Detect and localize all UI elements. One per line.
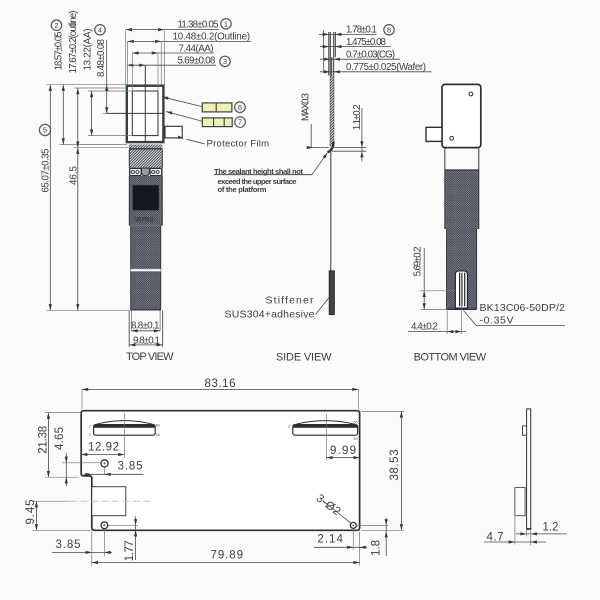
- svg-text:79.89: 79.89: [211, 550, 244, 562]
- svg-text:38.53: 38.53: [389, 450, 401, 481]
- svg-text:TOP VIEW: TOP VIEW: [126, 351, 174, 363]
- svg-text:9.45: 9.45: [25, 500, 37, 525]
- svg-text:1.78±0.1: 1.78±0.1: [346, 25, 377, 36]
- svg-text:2: 2: [54, 21, 58, 30]
- svg-text:18.57±0.05: 18.57±0.05: [54, 31, 65, 71]
- svg-text:0.775±0.025(Wafer): 0.775±0.025(Wafer): [346, 62, 426, 73]
- svg-text:4.4±0.2: 4.4±0.2: [411, 321, 438, 332]
- svg-text:49: 49: [156, 433, 160, 437]
- svg-text:4.65: 4.65: [54, 427, 66, 450]
- svg-text:2: 2: [288, 425, 290, 429]
- svg-text:1: 1: [224, 19, 228, 28]
- svg-text:1: 1: [89, 433, 91, 437]
- svg-text:3: 3: [223, 57, 227, 66]
- svg-text:Stiffener: Stiffener: [266, 295, 315, 307]
- svg-text:7: 7: [238, 118, 242, 127]
- svg-text:-0.35V: -0.35V: [480, 315, 514, 327]
- svg-text:MAX0.3: MAX0.3: [301, 92, 312, 121]
- svg-text:BOTTOM VIEW: BOTTOM VIEW: [414, 352, 487, 364]
- svg-text:2.14: 2.14: [317, 534, 343, 546]
- svg-text:49: 49: [354, 437, 358, 441]
- svg-text:BK13C06-50DP/2: BK13C06-50DP/2: [480, 302, 566, 314]
- svg-text:0.7±0.03(CG): 0.7±0.03(CG): [346, 49, 395, 60]
- svg-text:9.99: 9.99: [330, 445, 356, 457]
- svg-text:1.77: 1.77: [124, 540, 136, 561]
- svg-text:SIDE VIEW: SIDE VIEW: [276, 352, 332, 364]
- svg-text:5: 5: [43, 126, 47, 135]
- svg-text:of the platform: of the platform: [218, 185, 267, 194]
- svg-text:S6D05A1: S6D05A1: [134, 218, 155, 224]
- svg-text:12.92: 12.92: [88, 442, 119, 454]
- svg-text:5.69±0.2: 5.69±0.2: [413, 246, 424, 276]
- svg-text:8: 8: [387, 25, 391, 34]
- svg-text:3.85: 3.85: [118, 461, 143, 473]
- svg-text:8.48±0.08: 8.48±0.08: [96, 38, 107, 77]
- svg-text:83.16: 83.16: [205, 378, 236, 390]
- svg-text:11.38±0.05: 11.38±0.05: [178, 20, 220, 31]
- svg-text:17.67±0.2(outline): 17.67±0.2(outline): [68, 11, 79, 74]
- svg-text:13.22(AA): 13.22(AA): [82, 29, 93, 71]
- svg-text:Protector Film: Protector Film: [207, 139, 270, 150]
- svg-text:50: 50: [156, 424, 160, 428]
- svg-text:1.475±0.08: 1.475±0.08: [346, 37, 387, 48]
- svg-text:4: 4: [98, 25, 102, 34]
- svg-text:1.8: 1.8: [371, 540, 383, 556]
- svg-text:50: 50: [354, 421, 358, 425]
- svg-text:SUS304+adhesive: SUS304+adhesive: [225, 309, 315, 321]
- svg-text:1.2: 1.2: [543, 522, 559, 534]
- svg-text:21.38: 21.38: [37, 426, 49, 454]
- svg-text:6: 6: [238, 103, 242, 112]
- svg-text:2: 2: [89, 425, 91, 429]
- svg-text:10.48±0.2(Outline): 10.48±0.2(Outline): [173, 32, 251, 43]
- svg-text:3.85: 3.85: [56, 539, 81, 551]
